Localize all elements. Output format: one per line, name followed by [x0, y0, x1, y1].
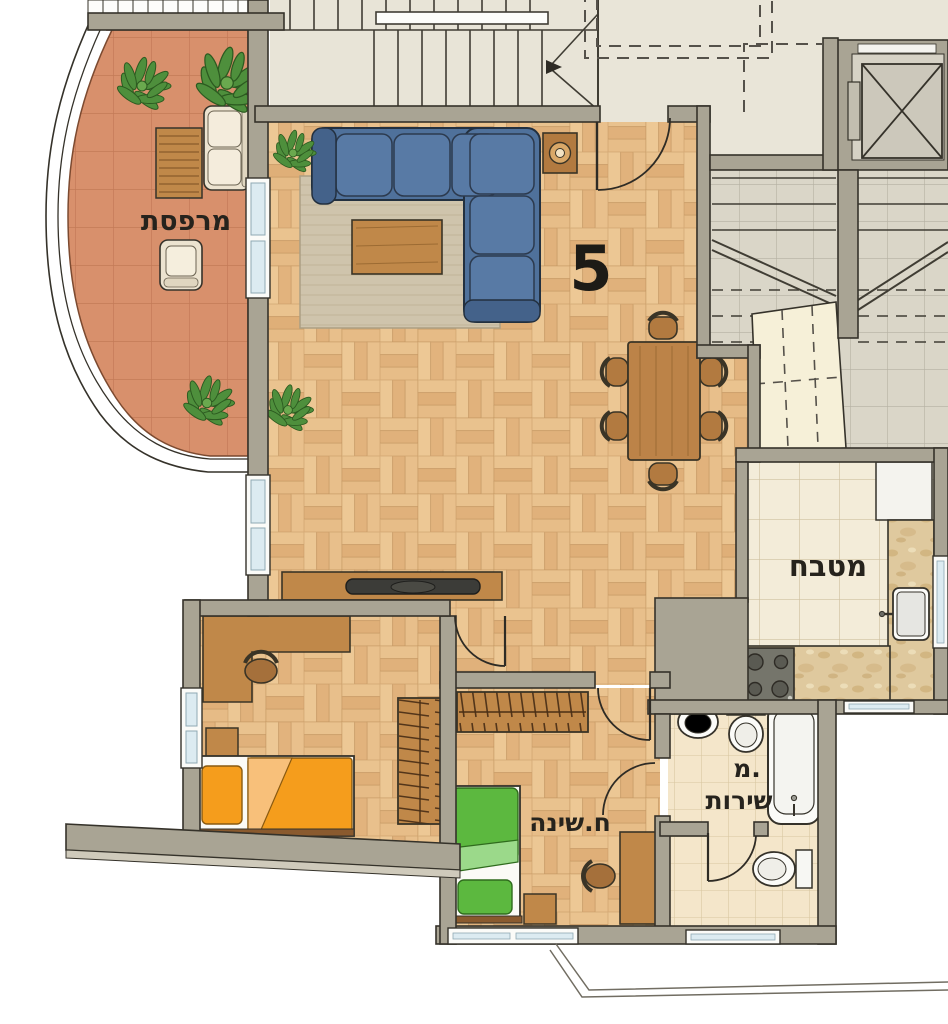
elevator: [836, 40, 948, 170]
floor-plan-drawing: מרפסת 5 מטבח מ. שירות ח.שינה: [0, 0, 948, 1024]
tv-console: [282, 572, 502, 600]
ledge-lines: [550, 944, 948, 997]
bedroom2-window: [448, 928, 578, 944]
wall-kitchen-west: [736, 462, 748, 602]
fridge: [876, 462, 932, 520]
wall-between-bedrooms: [440, 616, 456, 944]
balcony-sofa: [204, 106, 250, 190]
wardrobe-vertical: [398, 698, 442, 824]
kitchen-window-south: [844, 701, 914, 713]
bathroom-window: [686, 930, 780, 944]
wall-stair-divider: [838, 170, 858, 338]
wall-bathroom-partition: [660, 822, 708, 836]
room-label-bathroom-line1: מ.: [733, 754, 761, 783]
wall-bedroom2-north: [440, 672, 595, 688]
staircase-top: [270, 0, 600, 112]
room-label-balcony: מרפסת: [141, 206, 231, 237]
stair-skylight-shape: [752, 302, 846, 452]
wall-kitchen-north: [736, 448, 948, 462]
pillow: [458, 880, 512, 914]
balcony-table: [156, 128, 202, 198]
wall-living-east: [697, 106, 710, 358]
wall-duct-block: [655, 598, 748, 714]
living-window-west: [246, 475, 270, 575]
wall-living-north: [255, 106, 600, 122]
nightstand: [206, 728, 238, 758]
wall-bathroom-east: [818, 700, 836, 944]
nightstand: [524, 894, 556, 924]
pillow: [202, 766, 242, 824]
kitchen-window-east: [933, 556, 948, 648]
room-label-bathroom-line2: שירות: [705, 786, 772, 815]
room-label-bedroom: ח.שינה: [529, 808, 611, 837]
coffee-table: [352, 220, 442, 274]
wall-bedroom1-north: [185, 600, 450, 616]
stair-handrail: [376, 12, 548, 24]
elevator-counterweight: [848, 82, 860, 140]
bed-orange: [194, 756, 354, 836]
floor-plan-page: מרפסת 5 מטבח מ. שירות ח.שינה: [0, 0, 948, 1024]
dining-table: [628, 342, 700, 460]
unit-number-label: 5: [569, 232, 612, 305]
balcony-armchair: [160, 240, 202, 290]
toilet-bottom: [753, 850, 812, 888]
balcony-door-window: [246, 178, 270, 298]
room-label-kitchen: מטבח: [789, 549, 867, 583]
bedroom1-window: [181, 688, 202, 768]
wall-balcony-north: [88, 13, 284, 30]
wardrobe-horizontal: [457, 692, 588, 732]
wall-landing: [710, 155, 836, 170]
stove: [742, 648, 794, 702]
side-table: [543, 133, 577, 173]
pergola-strip: [88, 0, 258, 13]
bathtub: [768, 704, 820, 824]
